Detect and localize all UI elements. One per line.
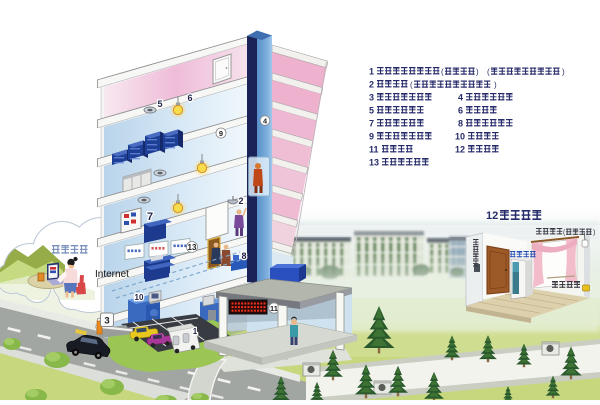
svg-text:7: 7 bbox=[369, 119, 374, 129]
svg-text:12: 12 bbox=[455, 145, 465, 155]
svg-text:(: ( bbox=[410, 81, 413, 90]
svg-text:(: ( bbox=[441, 68, 444, 77]
svg-text:11: 11 bbox=[369, 145, 379, 155]
svg-text:3: 3 bbox=[104, 316, 109, 327]
svg-text:): ) bbox=[476, 68, 479, 77]
svg-text:6: 6 bbox=[458, 106, 463, 116]
svg-text:7: 7 bbox=[147, 211, 153, 223]
svg-text:13: 13 bbox=[369, 158, 379, 168]
svg-text:): ) bbox=[494, 81, 497, 90]
svg-text:Internet: Internet bbox=[95, 269, 129, 280]
svg-text:3: 3 bbox=[369, 93, 374, 103]
svg-text:13: 13 bbox=[188, 243, 197, 252]
svg-text:6: 6 bbox=[187, 93, 192, 103]
svg-text:9: 9 bbox=[369, 132, 374, 142]
svg-text:9: 9 bbox=[219, 129, 223, 138]
svg-text:1: 1 bbox=[193, 327, 198, 336]
svg-text:10: 10 bbox=[455, 132, 465, 142]
svg-text:(: ( bbox=[487, 68, 490, 77]
svg-text:): ) bbox=[562, 68, 565, 77]
svg-text:2: 2 bbox=[238, 196, 243, 206]
svg-text:4: 4 bbox=[458, 93, 463, 103]
svg-text:12: 12 bbox=[486, 210, 498, 222]
svg-text:1: 1 bbox=[369, 67, 374, 77]
svg-text:11: 11 bbox=[270, 304, 278, 313]
svg-text:8: 8 bbox=[241, 251, 246, 261]
svg-text:2: 2 bbox=[369, 80, 374, 90]
svg-text:): ) bbox=[593, 230, 595, 237]
svg-text:5: 5 bbox=[369, 106, 374, 116]
svg-text:10: 10 bbox=[135, 293, 144, 302]
svg-text:5: 5 bbox=[157, 99, 162, 109]
svg-text:8: 8 bbox=[458, 119, 463, 129]
